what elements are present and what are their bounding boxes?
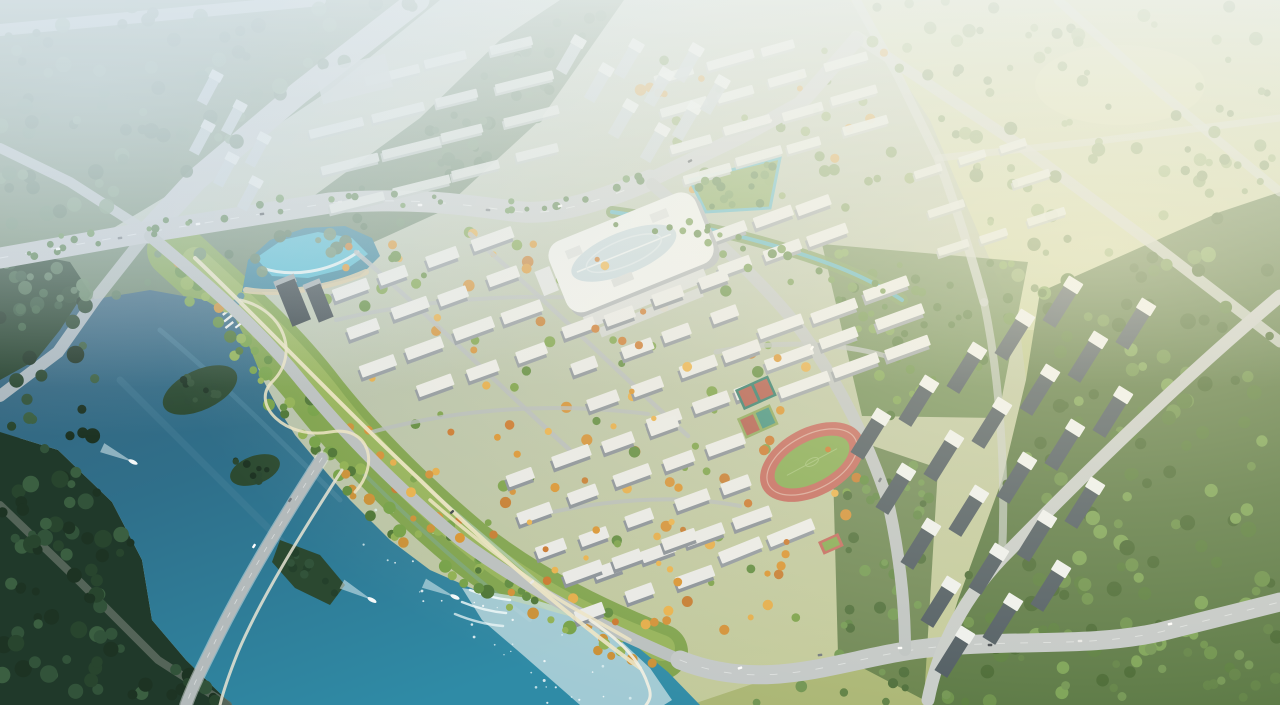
atmosphere-haze: [0, 0, 1280, 705]
aerial-render-canvas: [0, 0, 1280, 705]
aerial-city-render: [0, 0, 1280, 705]
